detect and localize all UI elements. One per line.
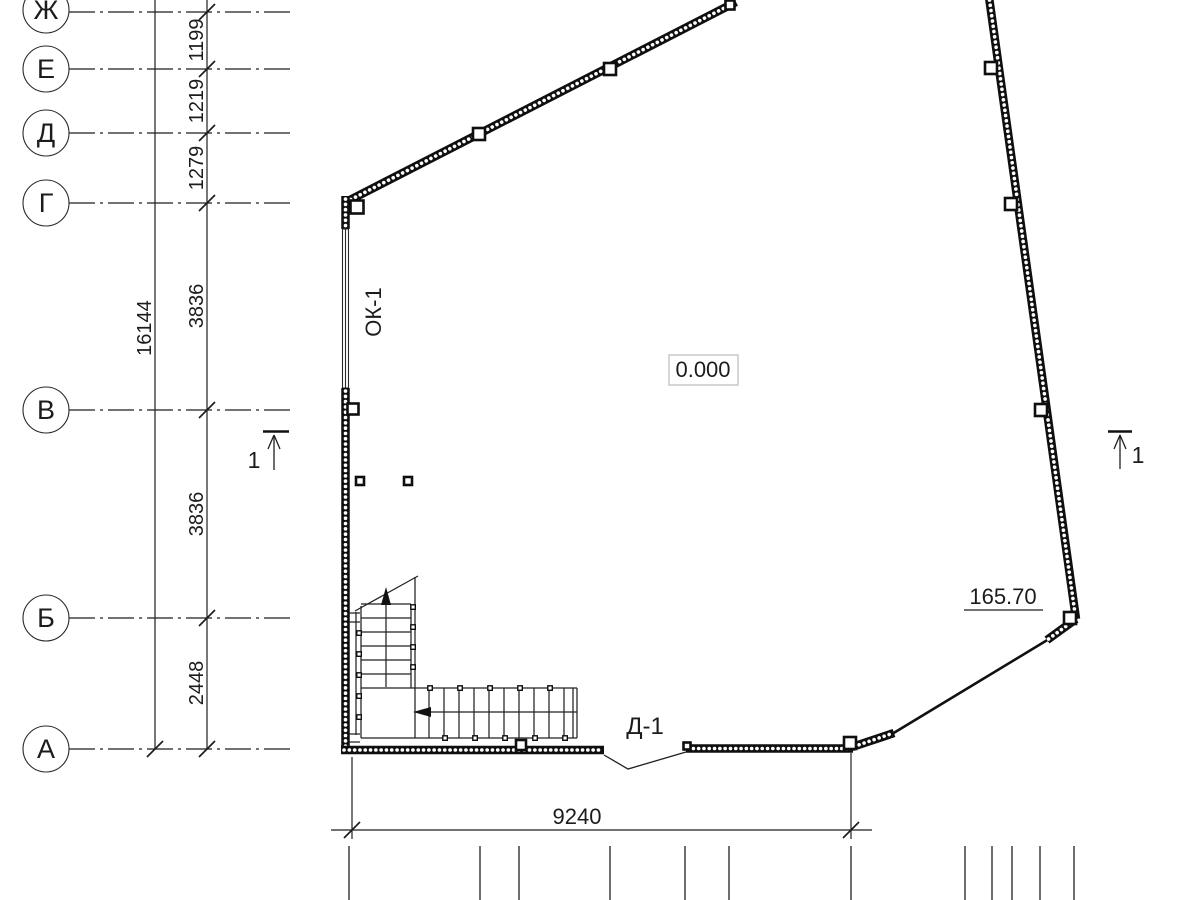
stair-post bbox=[563, 736, 568, 741]
dim-text: 2448 bbox=[186, 661, 208, 706]
axis-label: Д bbox=[37, 118, 55, 148]
column bbox=[726, 1, 735, 10]
door-swing bbox=[604, 752, 686, 769]
annotations: ОК-1 0.000 Д-1 165.70 1 1 bbox=[248, 287, 1145, 740]
dim-text: 1219 bbox=[186, 79, 208, 124]
stair-post bbox=[411, 605, 416, 610]
door-mark-label: Д-1 bbox=[626, 713, 664, 740]
stair-post bbox=[357, 652, 362, 657]
stair-post bbox=[533, 736, 538, 741]
total-dim-text: 16144 bbox=[134, 300, 156, 356]
axis-label: Е bbox=[37, 54, 55, 84]
axis-grid: Ж Е Д Г В Б А 1199 1219 1279 3836 3836 2… bbox=[23, 0, 290, 772]
section-arrowhead bbox=[268, 435, 274, 449]
section-number: 1 bbox=[1132, 442, 1145, 468]
dim-text: 3836 bbox=[186, 284, 208, 329]
dim-text: 1279 bbox=[186, 146, 208, 191]
dim-text: 3836 bbox=[186, 492, 208, 537]
small-column bbox=[404, 477, 412, 485]
column bbox=[1064, 612, 1076, 624]
stair-post bbox=[357, 673, 362, 678]
stair-post bbox=[488, 686, 493, 691]
stair bbox=[349, 576, 577, 742]
column bbox=[604, 63, 616, 75]
stair-post bbox=[428, 686, 433, 691]
stair-post bbox=[548, 686, 553, 691]
axis-label: А bbox=[37, 734, 55, 764]
bottom-ruler-ticks bbox=[349, 846, 1074, 900]
axis-label: Г bbox=[39, 188, 54, 218]
column bbox=[985, 62, 997, 74]
column bbox=[1035, 404, 1047, 416]
section-arrowhead bbox=[1114, 435, 1120, 449]
axis-label: Б bbox=[37, 603, 55, 633]
section-mark-right: 1 bbox=[1108, 432, 1144, 470]
section-arrowhead bbox=[1120, 435, 1126, 449]
left-arrow-icon bbox=[413, 707, 431, 717]
window-mark-label: ОК-1 bbox=[361, 287, 386, 337]
bottom-dim-text: 9240 bbox=[553, 804, 602, 829]
stair-post bbox=[411, 665, 416, 670]
column bbox=[516, 740, 526, 750]
level-mark-label: 0.000 bbox=[675, 357, 730, 382]
drawing-canvas: Ж Е Д Г В Б А 1199 1219 1279 3836 3836 2… bbox=[0, 0, 1200, 900]
column bbox=[1005, 198, 1017, 210]
bottom-dimension: 9240 bbox=[331, 753, 872, 839]
axis-label: В bbox=[37, 395, 55, 425]
stair-post bbox=[518, 686, 523, 691]
section-number: 1 bbox=[248, 447, 261, 473]
section-mark-left: 1 bbox=[248, 432, 289, 474]
stair-post bbox=[357, 631, 362, 636]
column bbox=[348, 404, 359, 415]
stair-post bbox=[357, 694, 362, 699]
stair-post bbox=[411, 645, 416, 650]
floor-plan-drawing: Ж Е Д Г В Б А 1199 1219 1279 3836 3836 2… bbox=[0, 0, 1200, 900]
stair-post bbox=[443, 736, 448, 741]
column bbox=[473, 128, 485, 140]
axis-label: Ж bbox=[34, 0, 59, 25]
column bbox=[684, 743, 691, 750]
stair-post bbox=[411, 625, 416, 630]
dim-text: 1199 bbox=[186, 18, 208, 61]
stair-post bbox=[357, 715, 362, 720]
column bbox=[844, 737, 856, 749]
elevation-mark-label: 165.70 bbox=[969, 584, 1036, 609]
stair-post bbox=[473, 736, 478, 741]
glazed-line bbox=[892, 639, 1049, 734]
stair-post bbox=[458, 686, 463, 691]
window-ok1 bbox=[343, 229, 349, 388]
section-arrowhead bbox=[274, 435, 280, 449]
small-column bbox=[356, 477, 364, 485]
column bbox=[351, 201, 364, 214]
stair-post bbox=[503, 736, 508, 741]
